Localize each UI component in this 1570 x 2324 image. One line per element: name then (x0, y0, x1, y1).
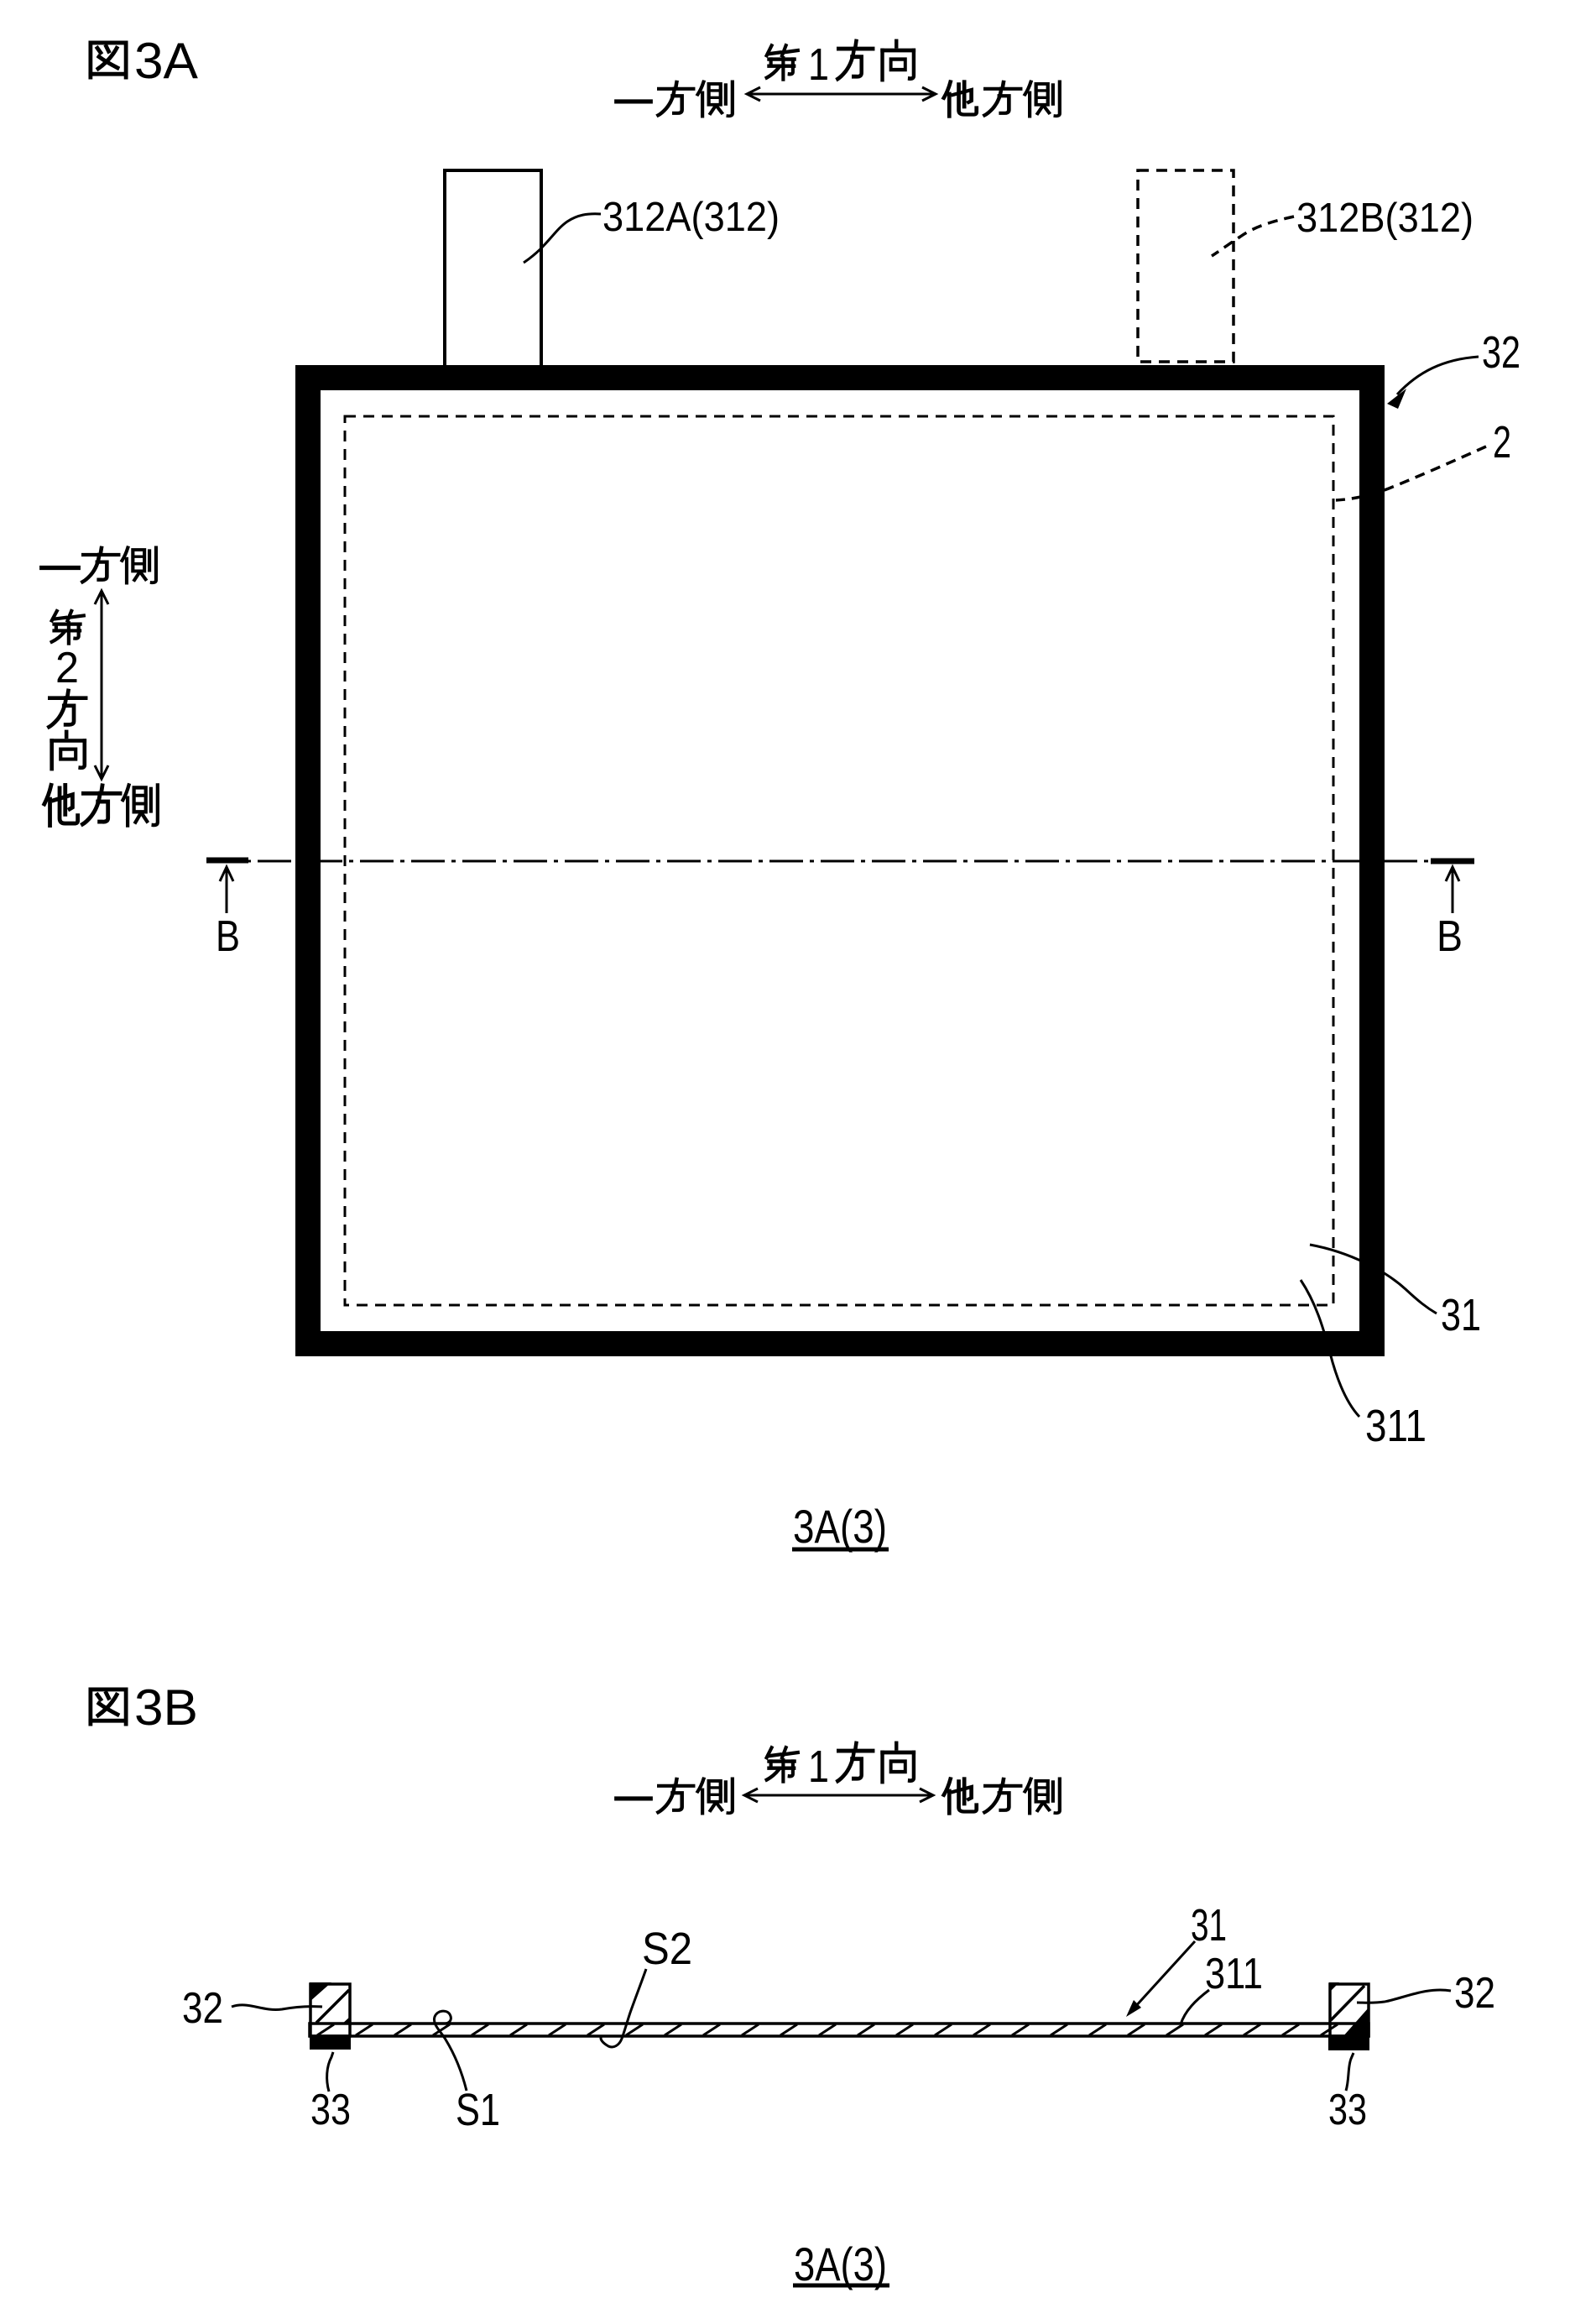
svg-text:31: 31 (1441, 1290, 1481, 1340)
svg-text:1: 1 (808, 39, 829, 90)
svg-text:311: 311 (1365, 1401, 1427, 1451)
svg-text:33: 33 (310, 2086, 351, 2134)
svg-text:32: 32 (1482, 327, 1520, 378)
svg-text:312A(312): 312A(312) (602, 195, 780, 240)
svg-text:B: B (216, 912, 240, 961)
svg-text:311: 311 (1205, 1950, 1263, 1998)
svg-text:3A(3): 3A(3) (793, 1500, 887, 1553)
svg-text:1: 1 (808, 1742, 829, 1792)
svg-text:S2: S2 (642, 1924, 692, 1974)
svg-text:33: 33 (1328, 2086, 1367, 2134)
svg-text:3A(3): 3A(3) (794, 2238, 887, 2290)
svg-text:31: 31 (1191, 1900, 1227, 1951)
svg-text:2: 2 (55, 644, 79, 692)
svg-text:S1: S1 (456, 2085, 500, 2135)
svg-text:3A: 3A (134, 33, 198, 89)
svg-text:312B(312): 312B(312) (1296, 196, 1474, 241)
svg-text:B: B (1437, 912, 1463, 961)
svg-text:2: 2 (1493, 417, 1511, 467)
svg-text:32: 32 (1454, 1969, 1495, 2018)
svg-text:3B: 3B (134, 1679, 198, 1736)
svg-text:32: 32 (182, 1984, 223, 2033)
